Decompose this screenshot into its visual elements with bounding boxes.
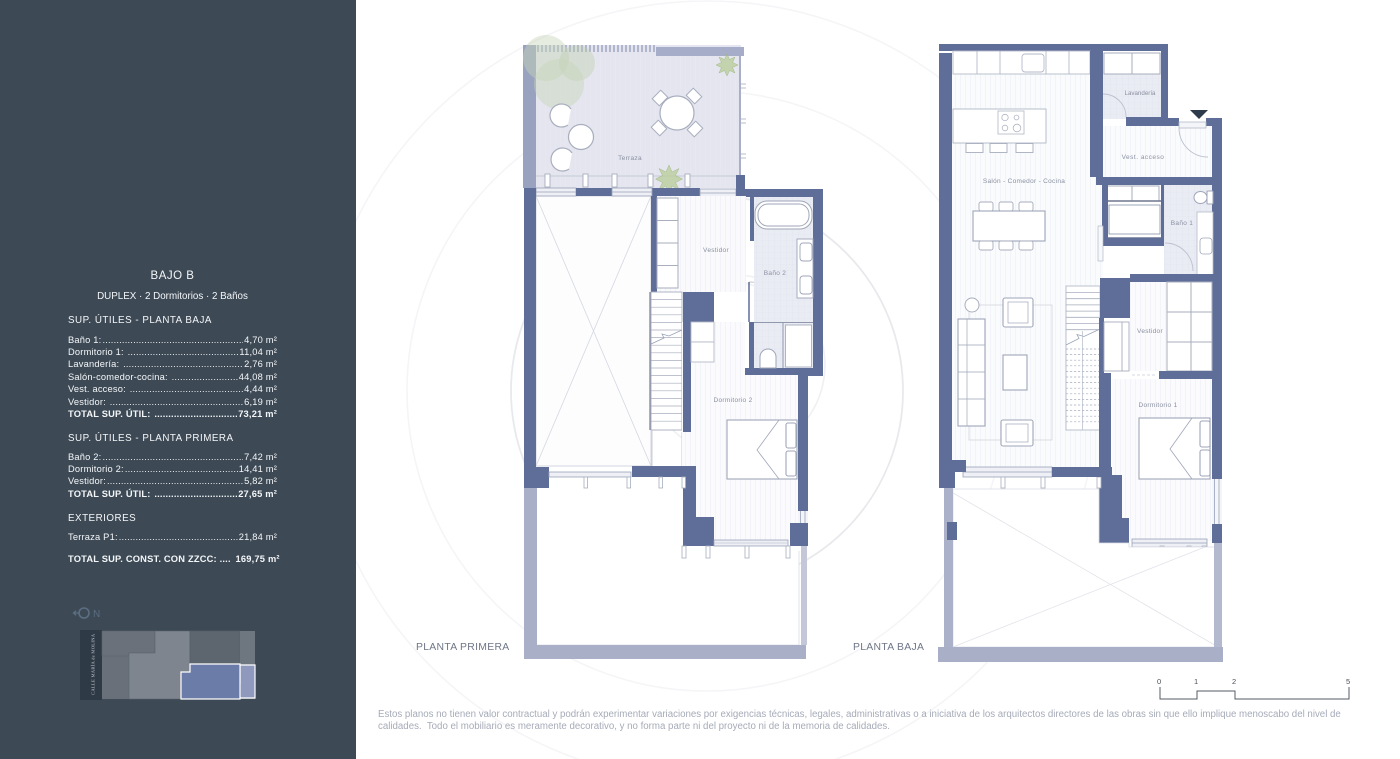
svg-text:Vest. acceso: Vest. acceso xyxy=(1122,154,1165,161)
svg-text:Vestidor: Vestidor xyxy=(703,247,729,254)
svg-text:Baño 2: Baño 2 xyxy=(764,270,786,277)
svg-text:CALLE MARÍA de MOLINA: CALLE MARÍA de MOLINA xyxy=(91,633,96,695)
svg-text:Baño 1: Baño 1 xyxy=(1171,220,1193,227)
svg-text:Vestidor: Vestidor xyxy=(1137,328,1163,335)
svg-text:1: 1 xyxy=(1194,677,1198,686)
svg-text:0: 0 xyxy=(1157,677,1161,686)
svg-text:Terraza: Terraza xyxy=(618,155,642,162)
svg-text:N: N xyxy=(93,609,100,620)
svg-text:Dormitorio 2: Dormitorio 2 xyxy=(714,397,753,404)
svg-text:Dormitorio 1: Dormitorio 1 xyxy=(1139,402,1178,409)
svg-text:Salón - Comedor - Cocina: Salón - Comedor - Cocina xyxy=(983,178,1065,185)
svg-text:5: 5 xyxy=(1346,677,1350,686)
svg-text:Lavandería: Lavandería xyxy=(1125,90,1157,97)
svg-text:2: 2 xyxy=(1232,677,1236,686)
